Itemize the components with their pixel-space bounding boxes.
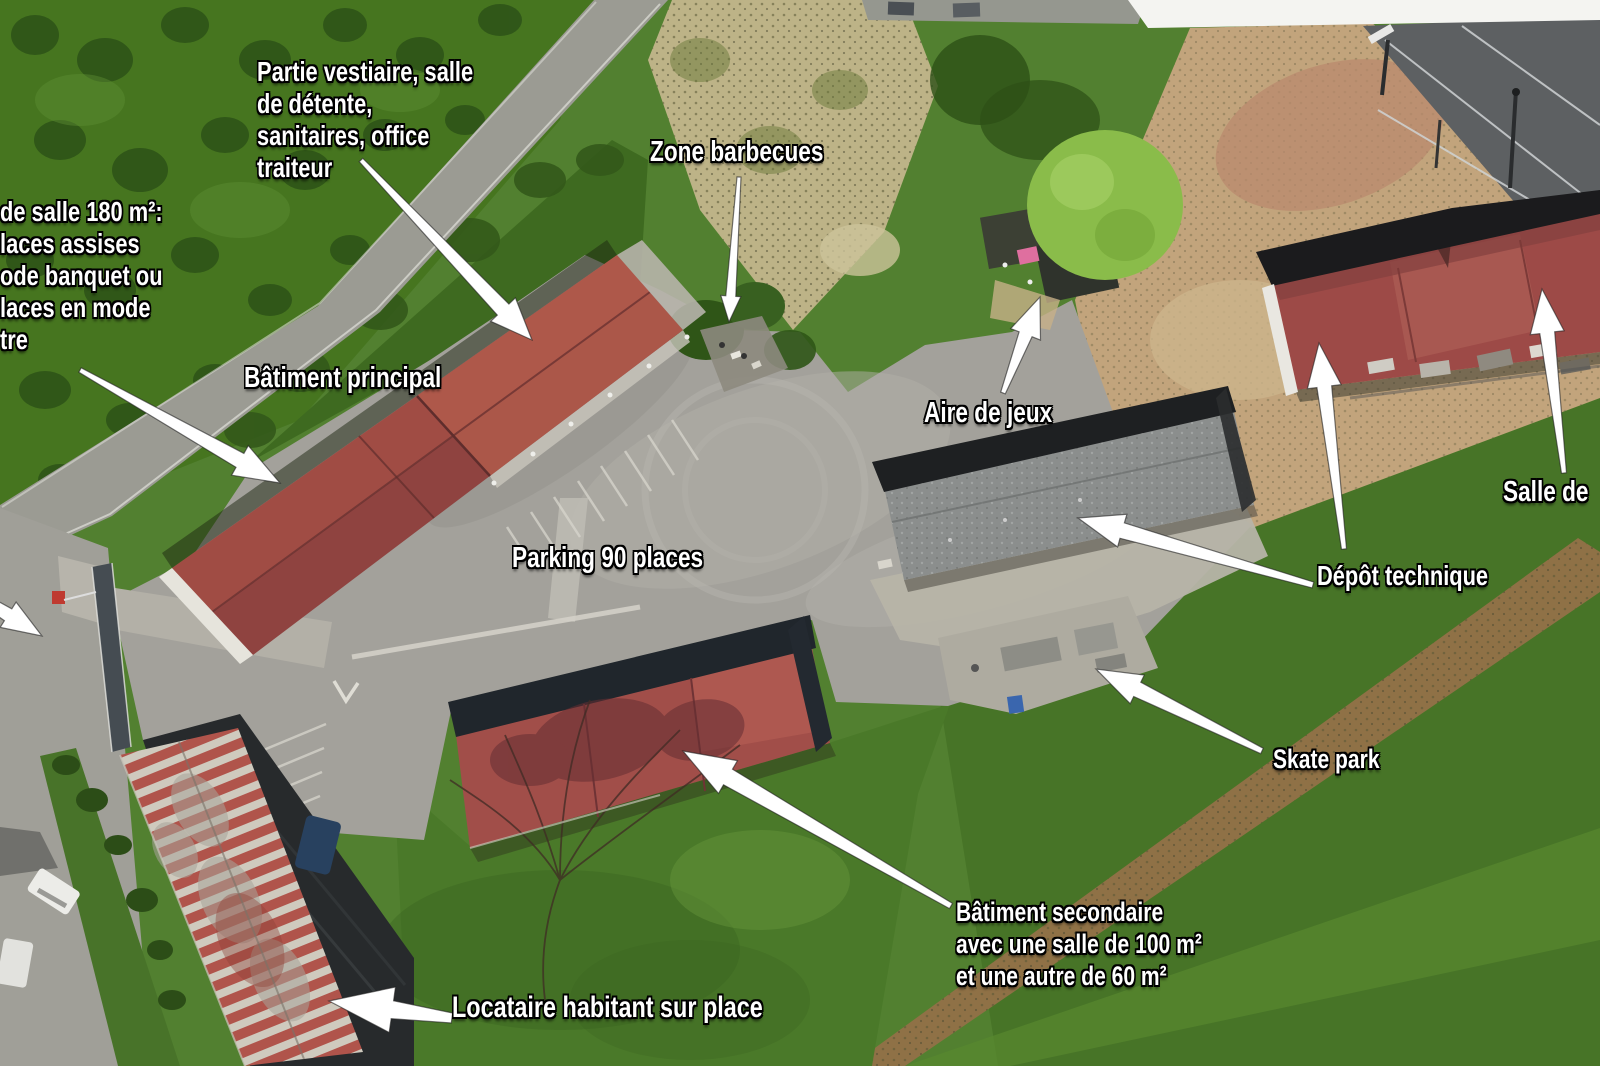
label-line: laces assises — [0, 228, 163, 260]
annotation-arrow — [1078, 514, 1314, 588]
label-line: tre — [0, 324, 163, 356]
annotation-arrow — [721, 177, 741, 322]
label-aire-de-jeux: Aire de jeux — [924, 397, 1052, 429]
annotation-arrow — [1001, 297, 1041, 394]
label-vestiaire: Partie vestiaire, salle de détente, sani… — [257, 56, 473, 184]
label-line: de détente, — [257, 88, 473, 120]
label-line: de salle 180 m²: — [0, 196, 163, 228]
label-depot-technique: Dépôt technique — [1317, 560, 1488, 592]
label-line: ode banquet ou — [0, 260, 163, 292]
label-line: laces en mode — [0, 292, 163, 324]
label-line: avec une salle de 100 m² — [956, 928, 1202, 960]
label-zone-barbecues: Zone barbecues — [650, 136, 823, 168]
label-skate-park: Skate park — [1273, 743, 1380, 775]
label-salle-info: de salle 180 m²: laces assises ode banqu… — [0, 196, 163, 356]
annotation-arrow — [329, 987, 453, 1033]
label-line: Bâtiment secondaire — [956, 896, 1202, 928]
annotation-arrow — [1307, 343, 1346, 549]
label-line: Partie vestiaire, salle — [257, 56, 473, 88]
annotation-arrow — [683, 751, 953, 909]
annotation-arrow — [0, 570, 42, 636]
label-batiment-principal: Bâtiment principal — [244, 362, 441, 394]
annotation-arrow — [359, 158, 532, 340]
label-parking: Parking 90 places — [512, 542, 703, 574]
annotation-arrow — [1530, 289, 1566, 473]
label-line: et une autre de 60 m² — [956, 960, 1202, 992]
annotated-aerial-photo: Partie vestiaire, salle de détente, sani… — [0, 0, 1600, 1066]
label-locataire: Locataire habitant sur place — [452, 992, 763, 1024]
label-salle-de: Salle de — [1503, 476, 1589, 508]
label-line: sanitaires, office — [257, 120, 473, 152]
label-batiment-secondaire: Bâtiment secondaire avec une salle de 10… — [956, 896, 1202, 992]
annotation-arrow — [1096, 669, 1263, 754]
label-line: traiteur — [257, 152, 473, 184]
